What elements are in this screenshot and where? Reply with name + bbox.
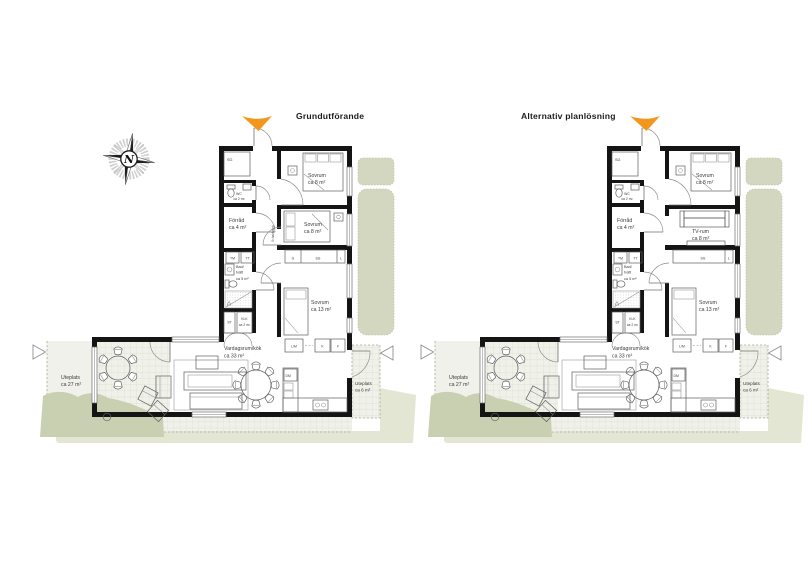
floor-plans-canvas: Grundutförande SG WC ca 2 m² Sovrum ca 8… [0,0,810,572]
living-name: Vardagsrum/kök [224,346,262,352]
tt-label: TT [633,257,637,261]
flex-room-name: TV-rum [692,229,709,235]
floor-plan-grundutforande: Grundutförande SG WC ca 2 m² Sovrum ca 8… [33,111,416,443]
wc-name: WC [624,192,630,196]
patio-large-area: ca 27 m² [61,382,81,388]
tm-label: TM [618,257,623,261]
lm-label: L/M [291,345,297,349]
plan-title: Grundutförande [296,111,364,121]
bath-name-2: tvätt [236,271,244,275]
flex-room-area: ca 8 m² [692,236,710,242]
bedroom-top-name: Sovrum [308,173,326,179]
wc-name: WC [236,192,242,196]
bath-area: ca 5 m² [236,277,249,281]
storage-area: ca 4 m² [617,225,635,231]
g-label: G [292,257,295,261]
klk-area: ca 2 m² [239,323,251,327]
storage-name: Förråd [617,217,632,224]
k-label: K [321,345,324,349]
bedroom-large-area: ca 13 m² [699,307,719,313]
f-label: F [725,345,727,349]
hall-closet-label: SG [615,158,621,162]
bath-name-1: Bad/ [624,265,633,269]
closet-st-label: ST [227,321,231,325]
bedroom-top-area: ca 8 m² [308,180,326,186]
f-label: F [337,345,339,349]
living-name: Vardagsrum/kök [612,346,650,352]
bedroom-top-area: ca 8 m² [696,180,714,186]
bedroom-top-name: Sovrum [696,173,714,179]
klk-name: KLK [629,317,636,321]
floor-plan-page: Grundutförande SG WC ca 2 m² Sovrum ca 8… [0,0,810,572]
bath-name-1: Bad/ [236,265,245,269]
bath-name-2: tvätt [624,271,632,275]
floor-plan-alternativ: Alternativ planlösning SG WC ca 2 m² Sov… [421,111,804,443]
patio-small-name: Uteplats [743,381,761,386]
dm-label: DM [286,374,291,378]
bedroom-large-name: Sovrum [311,300,329,306]
living-area: ca 33 m² [224,354,244,360]
patio-large-name: Uteplats [449,375,468,381]
patio-small-name: Uteplats [355,381,373,386]
compass-north-label: N [123,153,135,166]
l-label: L [340,257,342,261]
patio-small-area: ca 6 m² [355,388,371,393]
wall-note: Schaktvägg [271,225,275,242]
bedroom-large-name: Sovrum [699,300,717,306]
patio-large-area: ca 27 m² [449,382,469,388]
dm-label: DM [674,374,679,378]
storage-area: ca 4 m² [229,225,247,231]
tt-label: TT [245,257,249,261]
bath-area: ca 5 m² [624,277,637,281]
tm-label: TM [230,257,235,261]
flex-room-area: ca 8 m² [304,229,322,235]
flex-room-bedroom-variant [263,209,343,263]
l-label: L [728,257,730,261]
wc-area: ca 2 m² [233,197,245,201]
patio-small-area: ca 6 m² [743,388,759,393]
sg-label: SG [316,257,321,261]
k-label: K [709,345,712,349]
closet-st-label: ST [615,321,619,325]
klk-name: KLK [241,317,248,321]
storage-name: Förråd [229,217,244,224]
hall-closet-label: SG [227,158,233,162]
patio-large-name: Uteplats [61,375,80,381]
plan-title: Alternativ planlösning [521,111,616,121]
bedroom-large-area: ca 13 m² [311,307,331,313]
lm-label: L/M [679,345,685,349]
compass-icon: N [99,129,158,188]
flex-room-name: Sovrum [304,222,322,228]
sg-label: SG [701,257,706,261]
klk-area: ca 2 m² [627,323,639,327]
living-area: ca 33 m² [612,354,632,360]
wc-area: ca 2 m² [621,197,633,201]
